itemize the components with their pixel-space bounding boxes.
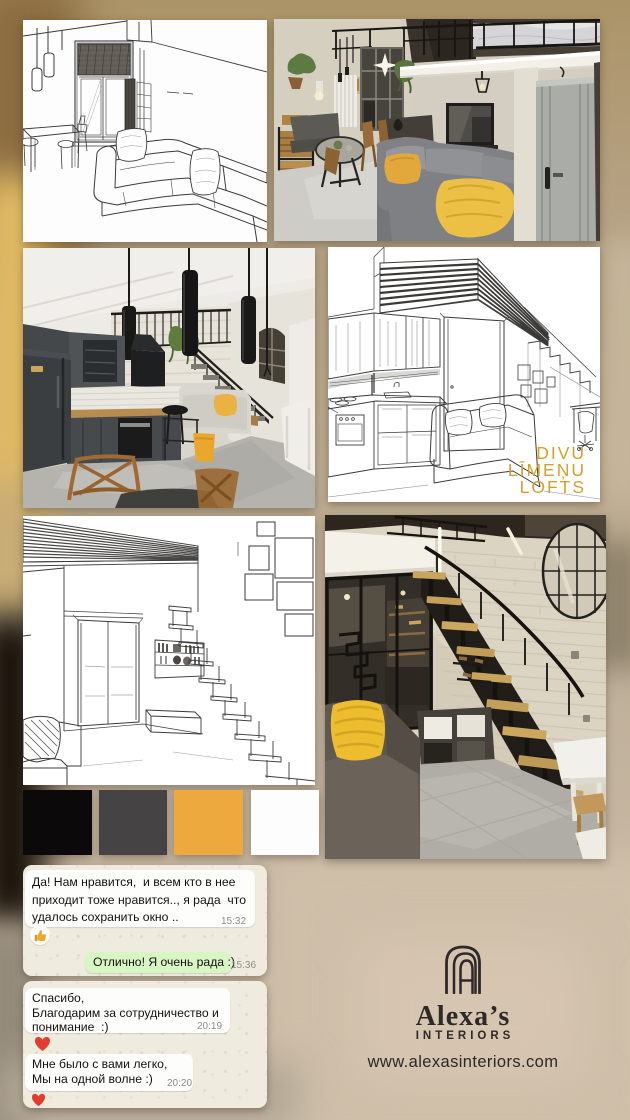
svg-text:LOFTS: LOFTS: [520, 477, 586, 497]
